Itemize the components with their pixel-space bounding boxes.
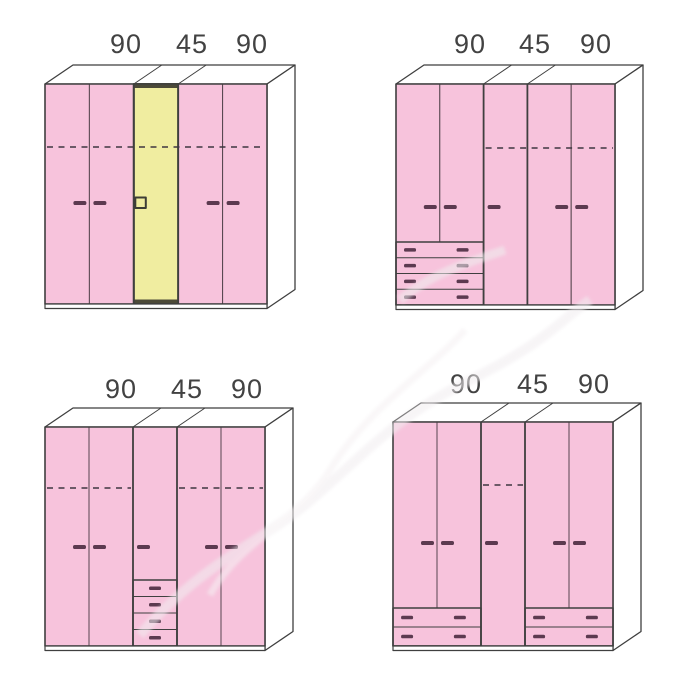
door [481,422,525,646]
side-face [615,65,643,310]
drawer-handle [586,635,598,639]
drawer-handle [404,264,416,268]
dimension-label: 90 [236,29,268,59]
top-face [45,408,293,427]
door-handle [421,541,434,545]
door [437,422,481,608]
door [393,422,437,608]
door [133,427,177,580]
mirror-door [134,84,178,304]
drawer-handle [149,603,161,607]
door [223,84,267,304]
dimension-label: 90 [110,29,142,59]
door [178,84,222,304]
drawer-handle [457,295,469,299]
wardrobe-top-left: 904590 [45,29,295,309]
door-handle [205,545,218,549]
dimension-label: 90 [580,29,612,59]
door-handle [207,201,220,205]
door-handle [555,205,568,209]
wardrobe-top-right: 904590 [396,29,643,310]
dimension-label: 90 [231,374,263,404]
drawer-handle [149,636,161,640]
plinth [45,304,267,309]
side-face [613,403,641,651]
door [89,427,133,646]
door-handle [485,541,498,545]
door-handle [73,201,86,205]
door [569,422,613,608]
drawer-handle [586,616,598,620]
door-handle [441,541,454,545]
door-handle [93,545,106,549]
door-handle [444,205,457,209]
wardrobe-bottom-right: 904590 [393,369,641,651]
door-handle [227,201,240,205]
drawer-handle [454,635,466,639]
top-face [396,65,643,84]
door-handle [575,205,588,209]
drawer-handle [457,248,469,252]
door [571,84,615,305]
door [484,84,528,305]
door [45,427,89,646]
door [177,427,221,646]
wardrobe-configurations-diagram: 904590904590904590904590 [0,0,700,700]
dimension-label: 45 [517,369,549,399]
door [440,84,484,242]
dimension-label: 90 [578,369,610,399]
door [527,84,571,305]
plinth [45,646,265,651]
drawer-handle [404,280,416,284]
dimension-label: 90 [454,29,486,59]
door [396,84,440,242]
dimension-label: 45 [176,29,208,59]
diagram-canvas: 904590904590904590904590 [0,0,700,700]
door-handle [488,205,501,209]
drawer-handle [533,616,545,620]
top-face [45,65,295,84]
dimension-label: 45 [171,374,203,404]
plinth [393,646,613,651]
dimension-label: 45 [519,29,551,59]
door-handle [424,205,437,209]
door-handle [553,541,566,545]
drawer-handle [401,635,413,639]
drawer-handle [454,616,466,620]
side-face [267,65,295,309]
door-handle [73,545,86,549]
dimension-label: 90 [105,374,137,404]
door-handle [573,541,586,545]
door-handle [137,545,150,549]
drawer-handle [533,635,545,639]
door-lock [135,198,146,209]
door [89,84,133,304]
door [525,422,569,608]
door-handle [93,201,106,205]
door [45,84,89,304]
drawer-handle [457,280,469,284]
drawer-handle [404,248,416,252]
drawer-handle [149,586,161,590]
drawer-handle [401,616,413,620]
